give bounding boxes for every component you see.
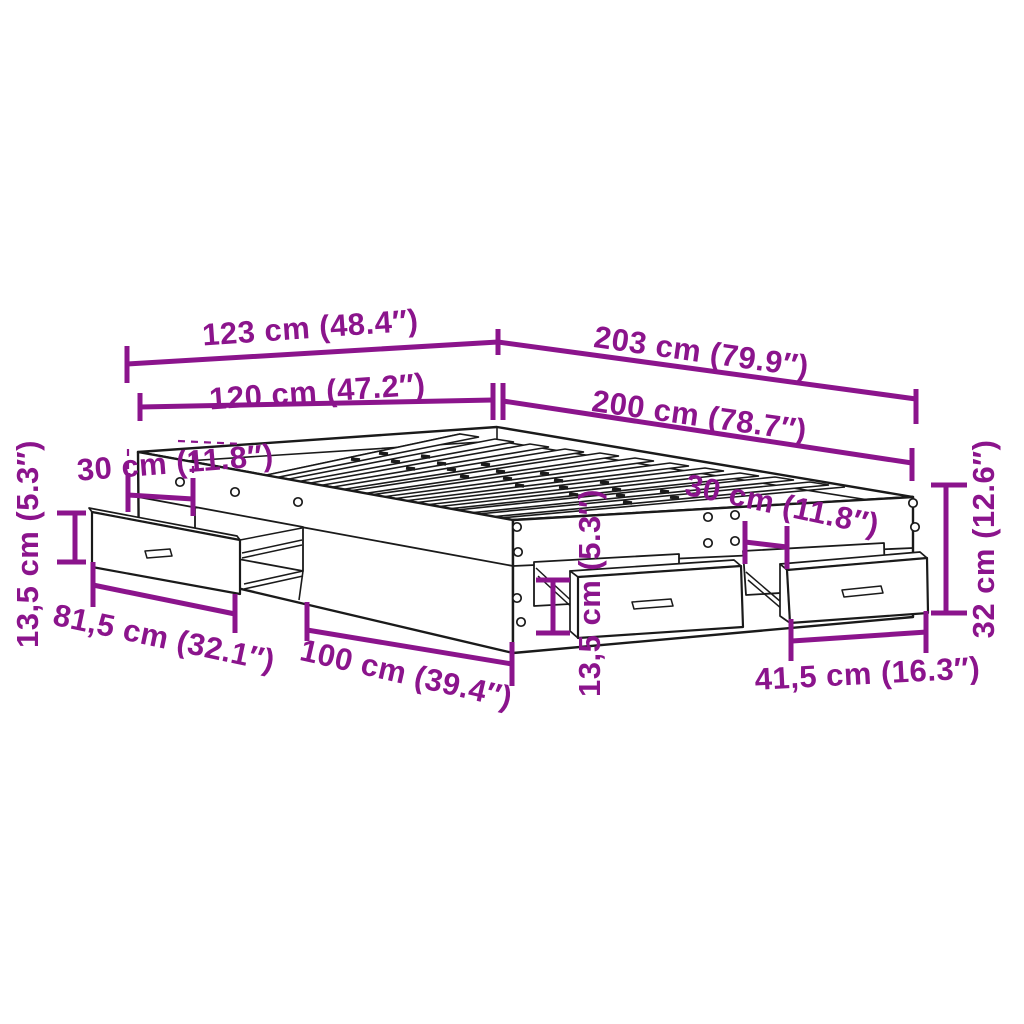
dim-length-overall-label: 203 cm (79.9″) xyxy=(592,319,811,384)
dim-side-drawer-height-label: 13,5 cm (5.3″) xyxy=(10,440,45,648)
side-drawer-handle xyxy=(145,549,172,558)
dim-foot-drawer-width-label: 41,5 cm (16.3″) xyxy=(754,650,981,697)
dim-side-drawer-height-line xyxy=(57,513,86,562)
dim-length-inner-label: 200 cm (78.7″) xyxy=(590,383,809,448)
foot-drawer-right xyxy=(780,552,928,623)
dim-frame-height-line xyxy=(931,485,967,613)
dim-width-overall-label: 123 cm (48.4″) xyxy=(201,303,420,353)
dim-frame-height-label: 32 cm (12.6″) xyxy=(966,440,1001,639)
dim-width-inner-label: 120 cm (47.2″) xyxy=(208,367,427,417)
dim-side-drawer-width-label: 81,5 cm (32.1″) xyxy=(50,597,278,678)
dim-foot-drawer-height-label: 13,5 cm (5.3″) xyxy=(572,489,607,697)
diagram-page: 123 cm (48.4″) 203 cm (79.9″) 120 cm (47… xyxy=(0,0,1024,1024)
bed-frame-dimension-diagram: 123 cm (48.4″) 203 cm (79.9″) 120 cm (47… xyxy=(0,0,1024,1024)
